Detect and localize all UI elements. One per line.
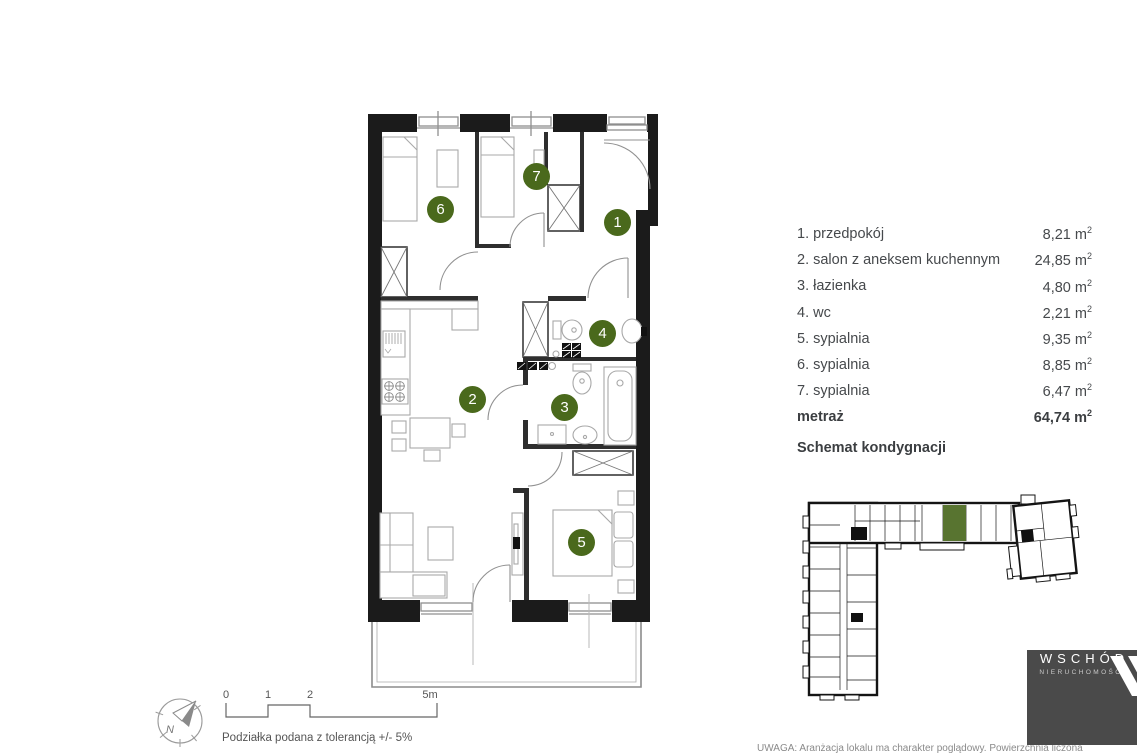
room-area: 9,35 m2 xyxy=(1043,330,1092,348)
room-area: 8,21 m2 xyxy=(1043,225,1092,243)
room-label: 5. sypialnia xyxy=(797,331,870,347)
balcony xyxy=(372,622,641,687)
room-badge-7: 7 xyxy=(523,163,550,190)
scale-tick-5m: 5m xyxy=(422,689,437,701)
room-label: 6. sypialnia xyxy=(797,357,870,373)
north-label: N xyxy=(166,724,174,736)
room-badge-1: 1 xyxy=(604,209,631,236)
room-area: 4,80 m2 xyxy=(1043,278,1092,296)
legend-row: 6. sypialnia 8,85 m2 xyxy=(797,352,1092,378)
scale-tick-0: 0 xyxy=(223,689,229,701)
legend-row: 7. sypialnia 6,47 m2 xyxy=(797,378,1092,404)
room-label: 2. salon z aneksem kuchennym xyxy=(797,252,1000,268)
room-area: 2,21 m2 xyxy=(1043,304,1092,322)
scale-caption: Podziałka podana z tolerancją +/- 5% xyxy=(222,732,412,744)
scale-bar: 0 1 2 5m Podziałka podana z tolerancją +… xyxy=(222,689,438,744)
floor-plan xyxy=(363,108,658,693)
legend-row: 3. łazienka 4,80 m2 xyxy=(797,273,1092,299)
room-badge-4: 4 xyxy=(589,320,616,347)
furniture xyxy=(380,137,647,598)
room-badge-6: 6 xyxy=(427,196,454,223)
room-area: 8,85 m2 xyxy=(1043,356,1092,374)
total-label: metraż xyxy=(797,409,844,425)
company-logo: WSCHÓD NIERUCHOMOŚCI xyxy=(1027,650,1137,745)
room-label: 7. sypialnia xyxy=(797,383,870,399)
room-label: 1. przedpokój xyxy=(797,226,884,242)
compass-and-scale: N 0 1 2 5m Podziałka podana z tolerancją… xyxy=(150,688,450,750)
total-area: 64,74 m2 xyxy=(1034,408,1092,426)
room-badge-2: 2 xyxy=(459,386,486,413)
highlighted-unit xyxy=(943,505,966,541)
room-badge-3: 3 xyxy=(551,394,578,421)
compass-icon: N xyxy=(156,699,202,747)
legend-row: 2. salon z aneksem kuchennym 24,85 m2 xyxy=(797,247,1092,273)
legend-row: 1. przedpokój 8,21 m2 xyxy=(797,221,1092,247)
scale-tick-1: 1 xyxy=(265,689,271,701)
page: 1 2 3 4 5 6 7 1. przedpokój 8,21 m2 2. s… xyxy=(0,0,1137,754)
logo-w-icon xyxy=(1082,650,1137,698)
room-area: 24,85 m2 xyxy=(1035,251,1092,269)
legend-total-row: metraż 64,74 m2 xyxy=(797,404,1092,430)
room-legend: 1. przedpokój 8,21 m2 2. salon z aneksem… xyxy=(797,221,1092,456)
room-label: 4. wc xyxy=(797,305,831,321)
room-badge-5: 5 xyxy=(568,529,595,556)
legend-row: 4. wc 2,21 m2 xyxy=(797,300,1092,326)
legend-row: 5. sypialnia 9,35 m2 xyxy=(797,326,1092,352)
room-area: 6,47 m2 xyxy=(1043,382,1092,400)
schematic-heading: Schemat kondygnacji xyxy=(797,440,1092,456)
window-axis-lines xyxy=(473,583,589,665)
room-label: 3. łazienka xyxy=(797,278,866,294)
scale-tick-2: 2 xyxy=(307,689,313,701)
